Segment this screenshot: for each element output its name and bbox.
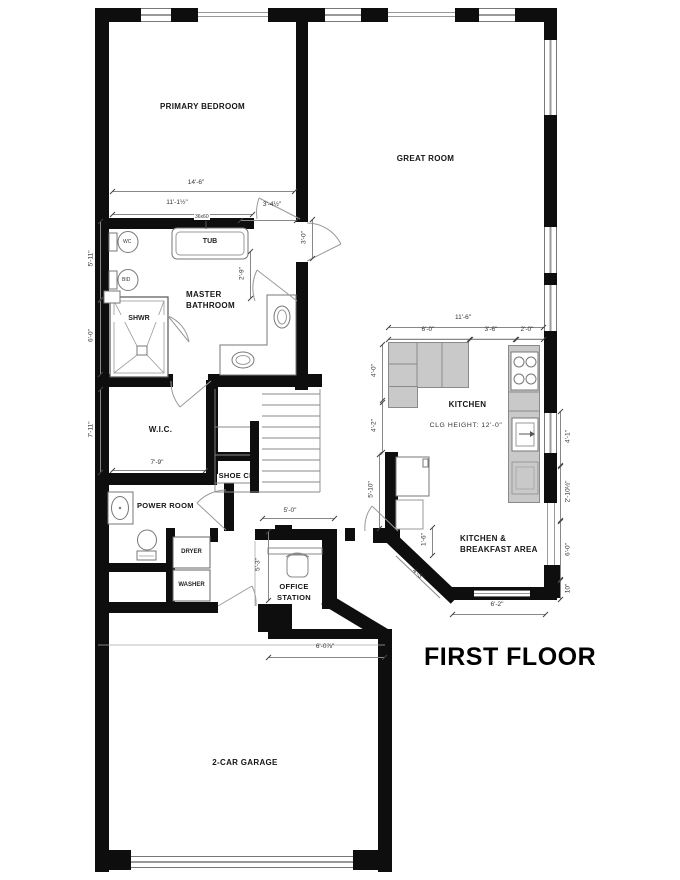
dim-line <box>262 518 335 519</box>
wall <box>544 115 557 227</box>
room-label-wic: W.I.C. <box>138 424 183 435</box>
garage-door <box>131 856 353 868</box>
wall <box>166 528 175 612</box>
window <box>474 590 530 597</box>
shower-door-swing <box>168 316 189 342</box>
dim-line <box>100 301 101 374</box>
dim-label: 3'-4½" <box>247 201 297 208</box>
kitchen-counter <box>508 345 540 503</box>
dim-label: 11'-1½" <box>137 199 217 206</box>
door-swing <box>218 586 256 606</box>
dim-label: 14'-6" <box>156 179 236 186</box>
dim-label: 6'-0⅞" <box>290 643 360 650</box>
wall <box>171 8 198 22</box>
dim-label: 6'-2" <box>467 601 527 608</box>
dim-label: 6'-0" <box>398 326 458 333</box>
washer-label: WASHER <box>173 582 210 588</box>
dim-line <box>240 220 297 221</box>
dim-line <box>382 345 383 400</box>
dryer-label: DRYER <box>173 549 210 555</box>
window <box>547 503 555 565</box>
wall <box>455 8 479 22</box>
window <box>544 40 557 115</box>
dim-label: 4'-0" <box>371 351 378 391</box>
dim-line <box>560 467 561 520</box>
window <box>544 227 557 273</box>
wall <box>95 473 217 485</box>
dim-line <box>268 657 385 658</box>
room-label-kitchen: KITCHEN <box>440 399 495 410</box>
dim-label: 3'-0" <box>301 218 308 258</box>
wall <box>544 273 557 285</box>
wall <box>378 629 392 872</box>
dim-label: 5'-11" <box>88 239 95 279</box>
door-swing <box>253 270 297 301</box>
wall <box>210 528 218 542</box>
dim-line <box>312 220 313 258</box>
page-title: FIRST FLOOR <box>424 643 596 672</box>
dim-line <box>560 522 561 579</box>
wall <box>296 262 308 310</box>
dim-label: 4'-2" <box>371 406 378 446</box>
dim-label: 11'-6" <box>428 314 498 321</box>
wall <box>95 374 173 387</box>
window <box>141 8 171 22</box>
tub-size-label: 36x60 <box>194 214 210 220</box>
dim-line <box>470 339 516 340</box>
tub-label: TUB <box>172 238 248 245</box>
door-swing <box>171 381 211 407</box>
dim-label: 4'-1" <box>565 417 572 457</box>
dim-line <box>560 412 561 465</box>
room-label-garage: 2-CAR GARAGE <box>205 757 285 768</box>
wall <box>95 8 109 872</box>
dim-label: 5'-10" <box>368 470 375 510</box>
toilet-icon <box>137 530 157 560</box>
pantry-cabinet-icon <box>396 500 423 529</box>
dim-line <box>560 581 561 599</box>
dim-line <box>112 191 295 192</box>
wall <box>224 483 234 531</box>
wall <box>108 218 254 229</box>
wall <box>95 602 218 613</box>
wall <box>353 850 392 870</box>
wall <box>345 528 355 541</box>
window <box>325 8 361 22</box>
dim-label: 2'-0" <box>502 326 552 333</box>
dim-label: 7'-9" <box>127 459 187 466</box>
dim-label: 5'-0" <box>260 507 320 514</box>
wall <box>95 563 167 572</box>
dim-line <box>100 222 101 299</box>
room-label-great-room: GREAT ROOM <box>383 153 468 164</box>
wall <box>544 8 557 40</box>
floor-plan: 14'-6" 11'-1½" 3'-4½" 7'-9" 5'-0" 11'-6"… <box>0 0 680 880</box>
window <box>479 8 515 22</box>
room-label-primary-bedroom: PRIMARY BEDROOM <box>155 101 250 112</box>
office-desk-icon <box>268 548 322 577</box>
kitchen-counter <box>388 386 418 408</box>
dim-line <box>100 390 101 472</box>
dim-label: 6'-0" <box>565 530 572 570</box>
dim-label: 2'-9" <box>239 254 246 294</box>
refrigerator-icon <box>396 457 429 496</box>
dim-line <box>452 614 546 615</box>
room-label-office-station: OFFICE STATION <box>264 582 324 603</box>
kitchen-counter <box>388 342 469 388</box>
dim-line <box>112 470 206 471</box>
wall <box>296 20 308 222</box>
dim-label: 2'-10½" <box>565 472 572 512</box>
wall <box>385 452 398 534</box>
room-label-power-room: POWER ROOM <box>137 501 207 512</box>
dim-line <box>432 528 433 555</box>
wall <box>544 453 557 503</box>
room-label-master-bathroom: MASTER BATHROOM <box>186 289 256 311</box>
dim-line <box>516 339 544 340</box>
dim-line <box>379 455 380 528</box>
shower-icon <box>104 291 168 377</box>
wall <box>95 8 141 22</box>
dim-label: 5'-3" <box>255 545 262 585</box>
window <box>198 12 268 17</box>
dim-label: 6'-0" <box>88 316 95 356</box>
wall <box>208 374 322 387</box>
shower-label: SHWR <box>113 315 165 322</box>
dim-label: 1'-6" <box>421 520 428 560</box>
wall <box>250 421 259 493</box>
room-label-shoe-closet: SHOE CL. <box>215 471 260 482</box>
dim-line <box>112 214 253 215</box>
wall <box>258 604 292 632</box>
wall <box>544 331 557 413</box>
dim-line <box>388 339 470 340</box>
window <box>544 413 557 453</box>
dim-line <box>382 403 383 452</box>
ceiling-height-note: CLG HEIGHT: 12'-0" <box>421 422 511 429</box>
wall <box>361 8 388 22</box>
sink-icon <box>108 492 133 524</box>
room-label-breakfast: KITCHEN & BREAKFAST AREA <box>460 533 545 555</box>
bidet-label: BID <box>121 277 131 283</box>
wall <box>95 850 131 870</box>
window <box>388 12 455 17</box>
wall <box>322 529 337 609</box>
dim-label: 10" <box>565 569 572 609</box>
dim-label: 7'-11" <box>88 410 95 450</box>
wc-label: WC <box>122 239 132 245</box>
